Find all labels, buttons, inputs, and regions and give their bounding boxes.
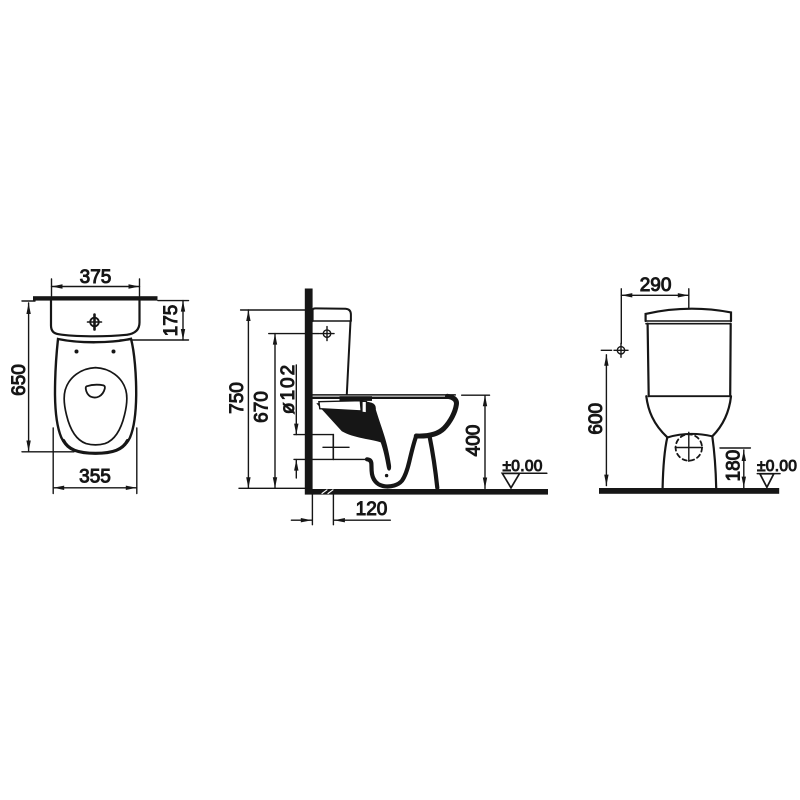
svg-text:120: 120 xyxy=(356,499,388,520)
svg-text:750: 750 xyxy=(227,382,248,414)
svg-text:670: 670 xyxy=(252,391,273,423)
svg-text:175: 175 xyxy=(161,305,182,337)
svg-text:400: 400 xyxy=(464,425,485,457)
svg-text:ø102: ø102 xyxy=(278,363,299,414)
svg-text:650: 650 xyxy=(9,364,30,396)
svg-text:290: 290 xyxy=(640,275,672,296)
svg-text:±0.00: ±0.00 xyxy=(757,458,797,475)
svg-text:±0.00: ±0.00 xyxy=(503,458,543,475)
svg-text:600: 600 xyxy=(586,403,607,435)
svg-text:180: 180 xyxy=(724,450,745,482)
svg-text:375: 375 xyxy=(80,267,112,288)
svg-text:355: 355 xyxy=(79,467,111,488)
